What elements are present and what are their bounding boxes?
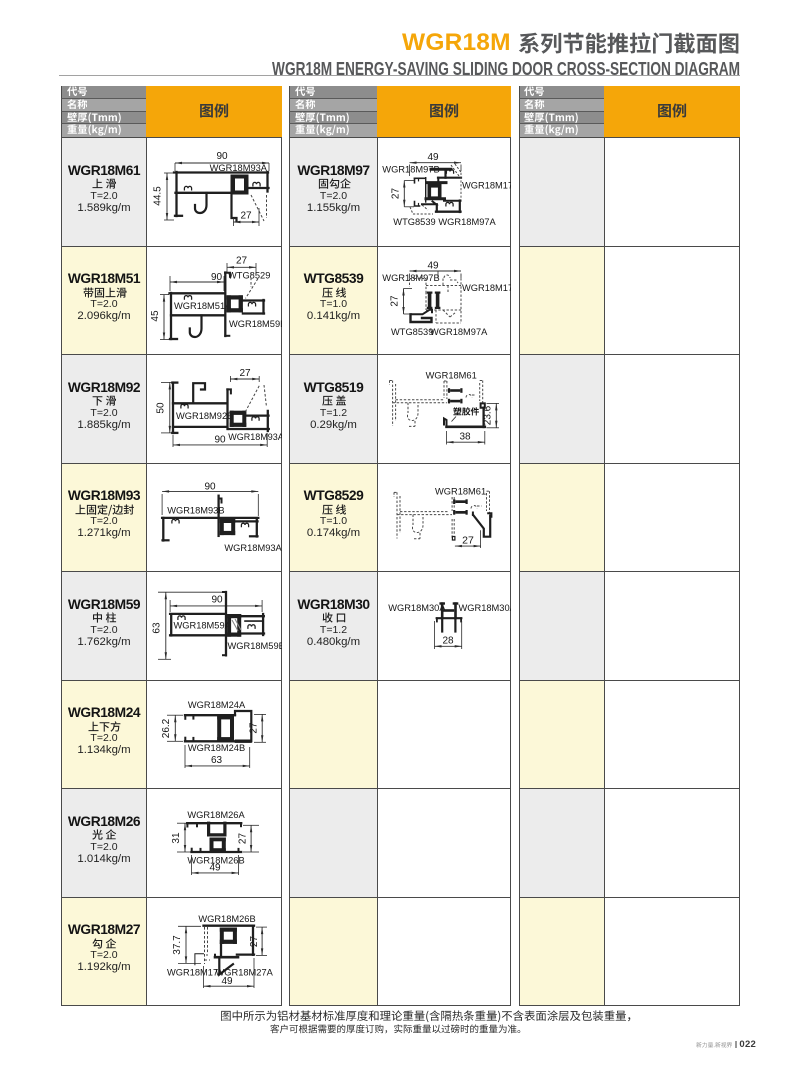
svg-text:WGR18M59A: WGR18M59A	[174, 621, 232, 631]
svg-text:WGR18M17: WGR18M17	[462, 181, 511, 191]
svg-text:WGR18M93B: WGR18M93B	[167, 505, 224, 515]
svg-text:WGR18M17: WGR18M17	[167, 967, 218, 977]
svg-text:38: 38	[459, 432, 471, 443]
svg-text:27: 27	[391, 188, 402, 200]
svg-text:WGR18M24A: WGR18M24A	[188, 699, 246, 709]
svg-text:WGR18M61: WGR18M61	[426, 371, 477, 381]
svg-text:WGR18M61: WGR18M61	[435, 486, 486, 496]
svg-text:23.6: 23.6	[483, 405, 494, 425]
svg-text:WGR18M51A: WGR18M51A	[174, 301, 232, 311]
svg-text:49: 49	[427, 152, 439, 163]
svg-text:WGR18M59B: WGR18M59B	[229, 319, 282, 329]
svg-text:50: 50	[156, 402, 167, 414]
svg-text:WGR18M92B: WGR18M92B	[176, 411, 233, 421]
svg-text:WGR18M97A: WGR18M97A	[430, 327, 488, 337]
svg-text:27: 27	[236, 255, 248, 266]
svg-text:27: 27	[249, 722, 260, 734]
svg-text:63: 63	[211, 754, 223, 765]
svg-text:WGR18M97A: WGR18M97A	[438, 217, 496, 227]
svg-text:27: 27	[237, 833, 248, 845]
svg-text:WGR18M93A: WGR18M93A	[228, 432, 282, 442]
svg-text:WGR18M30A: WGR18M30A	[459, 603, 512, 613]
svg-text:WGR18M30A: WGR18M30A	[388, 603, 446, 613]
svg-text:49: 49	[209, 862, 221, 873]
svg-text:WGR18M26A: WGR18M26A	[187, 810, 245, 820]
svg-text:90: 90	[211, 595, 223, 606]
svg-text:27: 27	[390, 295, 401, 307]
svg-text:WTG8529: WTG8529	[228, 270, 270, 280]
svg-text:27: 27	[239, 368, 251, 379]
svg-text:44.5: 44.5	[153, 186, 164, 206]
svg-text:WTG8539: WTG8539	[393, 217, 435, 227]
svg-text:27: 27	[249, 935, 260, 947]
svg-text:WGR18M93A: WGR18M93A	[224, 543, 282, 553]
svg-text:37.7: 37.7	[172, 934, 183, 954]
svg-text:49: 49	[427, 260, 439, 271]
svg-text:45: 45	[150, 310, 161, 322]
svg-text:90: 90	[214, 435, 226, 446]
svg-text:28: 28	[442, 635, 454, 646]
svg-text:49: 49	[221, 975, 233, 986]
svg-text:63: 63	[152, 622, 163, 634]
svg-text:27: 27	[462, 534, 474, 546]
svg-text:27: 27	[240, 211, 252, 222]
svg-text:90: 90	[216, 151, 228, 162]
svg-text:26.2: 26.2	[161, 718, 172, 738]
svg-text:WTG8539: WTG8539	[391, 327, 433, 337]
svg-text:WGR18M59B: WGR18M59B	[228, 641, 283, 651]
svg-text:31: 31	[171, 832, 182, 844]
svg-text:WGR18M26B: WGR18M26B	[198, 914, 255, 924]
svg-text:90: 90	[204, 481, 216, 492]
svg-text:90: 90	[211, 272, 223, 283]
svg-text:WGR18M17: WGR18M17	[462, 283, 511, 293]
svg-text:WGR18M24B: WGR18M24B	[188, 743, 245, 753]
